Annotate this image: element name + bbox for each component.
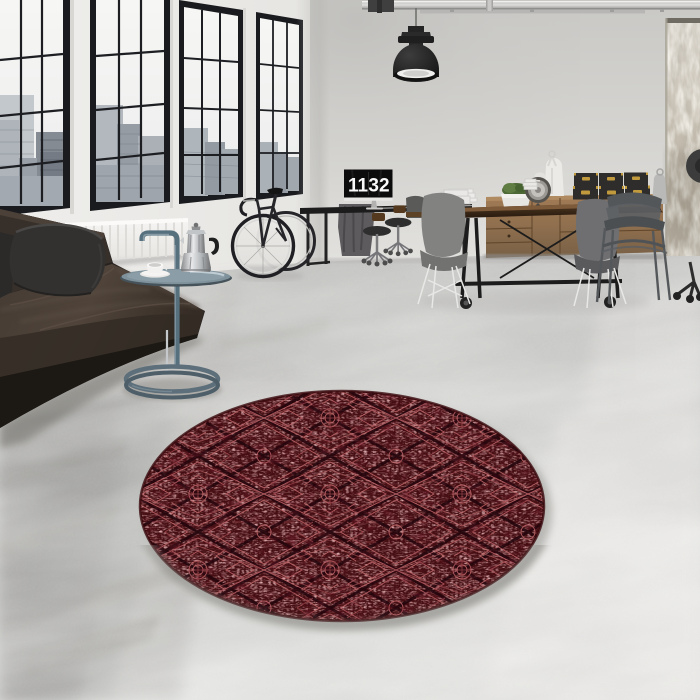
svg-text:11: 11 bbox=[348, 176, 369, 197]
svg-text:32: 32 bbox=[368, 176, 389, 197]
